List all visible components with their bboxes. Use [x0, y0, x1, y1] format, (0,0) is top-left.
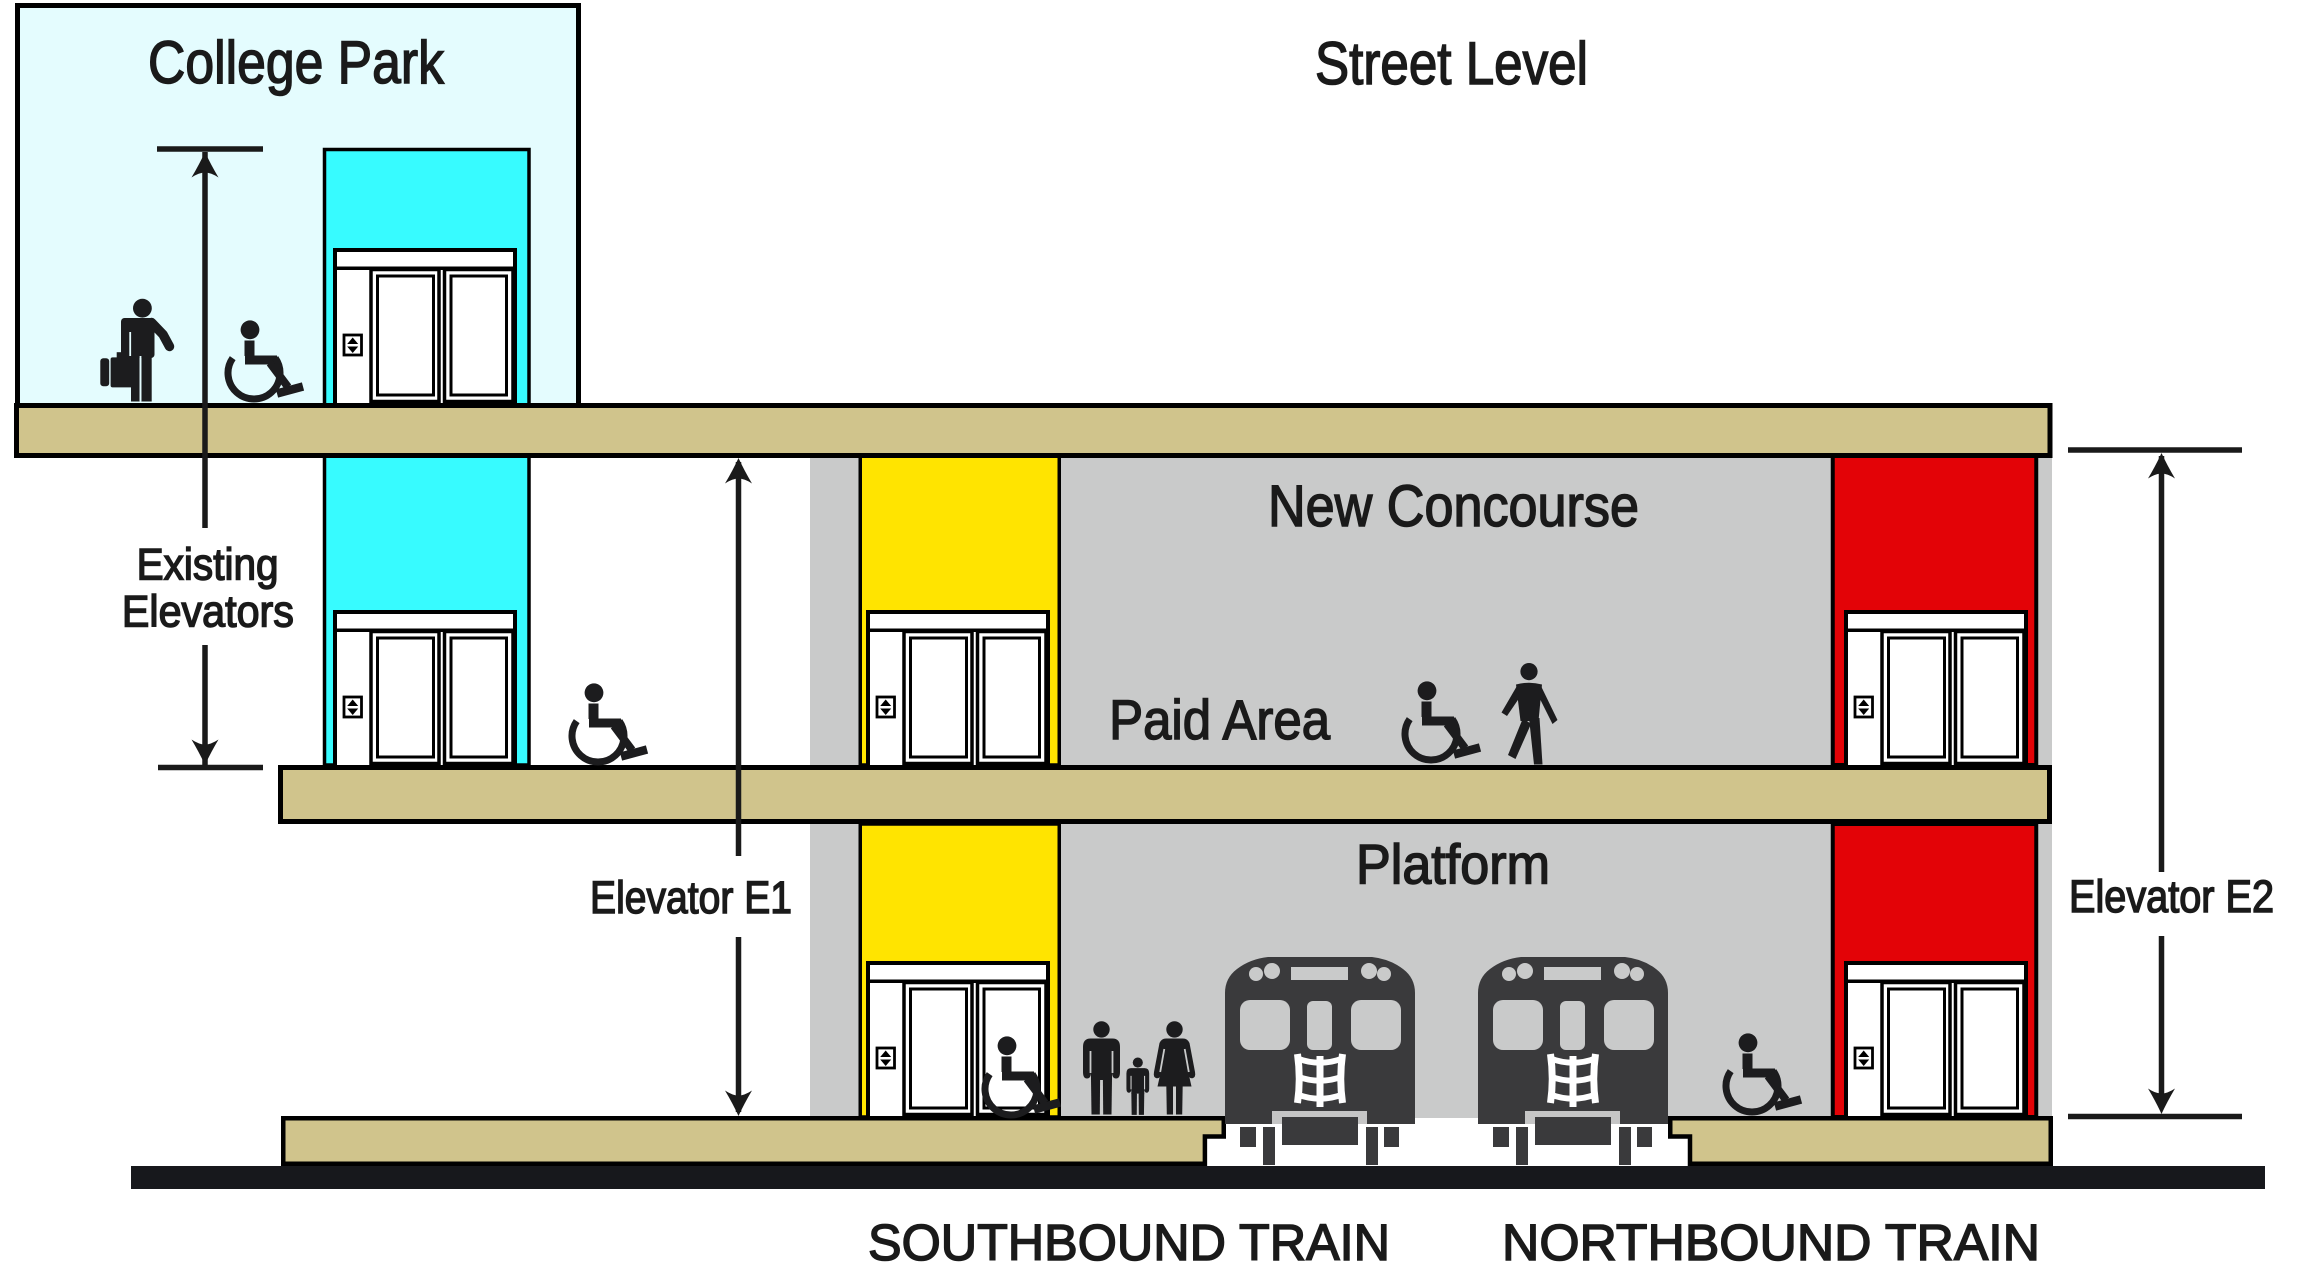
svg-text:Elevator E1: Elevator E1	[590, 872, 792, 923]
svg-text:SOUTHBOUND TRAIN: SOUTHBOUND TRAIN	[868, 1214, 1390, 1271]
svg-text:NORTHBOUND TRAIN: NORTHBOUND TRAIN	[1502, 1214, 2040, 1271]
svg-text:Street Level: Street Level	[1315, 30, 1588, 97]
svg-text:Elevator E2: Elevator E2	[2069, 871, 2274, 922]
svg-text:Existing: Existing	[137, 541, 279, 590]
svg-text:College Park: College Park	[148, 29, 445, 96]
svg-text:Platform: Platform	[1356, 833, 1550, 896]
svg-text:New Concourse: New Concourse	[1268, 474, 1639, 539]
svg-text:Elevators: Elevators	[122, 588, 294, 637]
svg-text:Paid Area: Paid Area	[1109, 688, 1331, 751]
